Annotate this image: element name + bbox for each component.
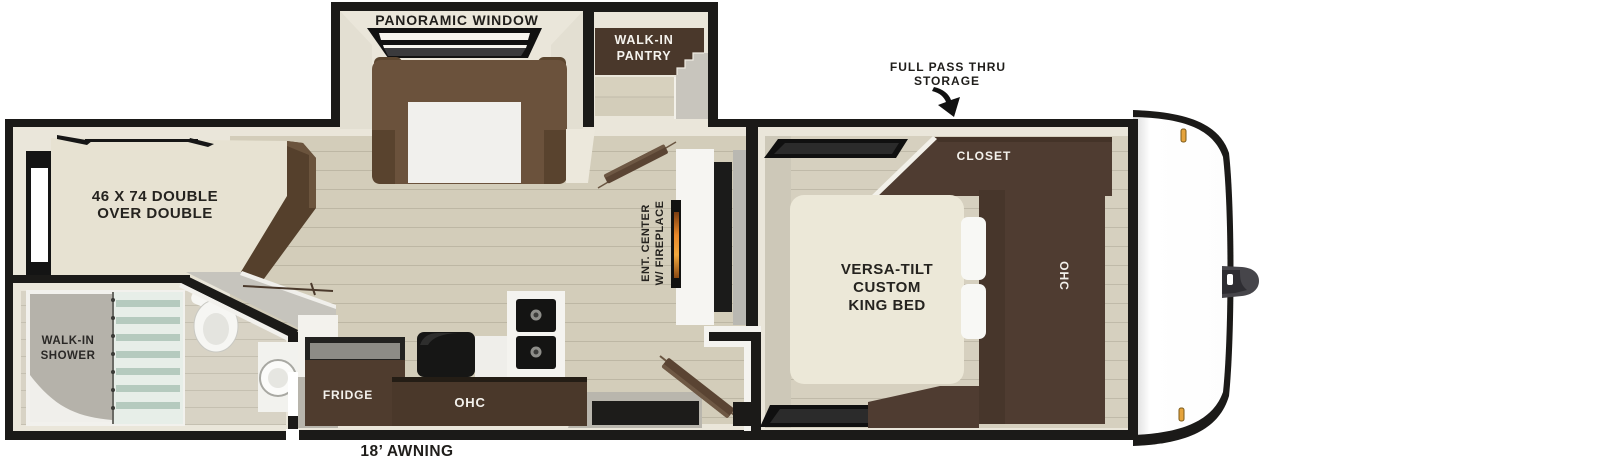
svg-text:WALK-IN: WALK-IN <box>614 33 673 47</box>
svg-text:VERSA-TILT: VERSA-TILT <box>841 261 933 278</box>
svg-text:STORAGE: STORAGE <box>914 74 980 88</box>
svg-text:46 X 74 DOUBLE: 46 X 74 DOUBLE <box>92 188 218 205</box>
svg-text:OHC: OHC <box>454 395 485 410</box>
svg-text:W/ FIREPLACE: W/ FIREPLACE <box>654 201 666 286</box>
svg-text:KING BED: KING BED <box>848 297 925 314</box>
svg-text:ENT. CENTER: ENT. CENTER <box>640 204 652 282</box>
svg-text:OHC: OHC <box>1057 261 1071 291</box>
svg-text:FRIDGE: FRIDGE <box>323 388 373 402</box>
svg-text:CUSTOM: CUSTOM <box>853 279 921 296</box>
svg-text:SHOWER: SHOWER <box>41 350 96 362</box>
svg-text:PANTRY: PANTRY <box>617 49 672 63</box>
svg-text:18’ AWNING: 18’ AWNING <box>360 443 453 460</box>
svg-text:OVER DOUBLE: OVER DOUBLE <box>97 205 213 222</box>
svg-text:PANORAMIC WINDOW: PANORAMIC WINDOW <box>375 12 538 28</box>
svg-text:CLOSET: CLOSET <box>957 149 1012 163</box>
svg-text:FULL PASS THRU: FULL PASS THRU <box>890 60 1006 74</box>
svg-text:WALK-IN: WALK-IN <box>42 335 95 347</box>
